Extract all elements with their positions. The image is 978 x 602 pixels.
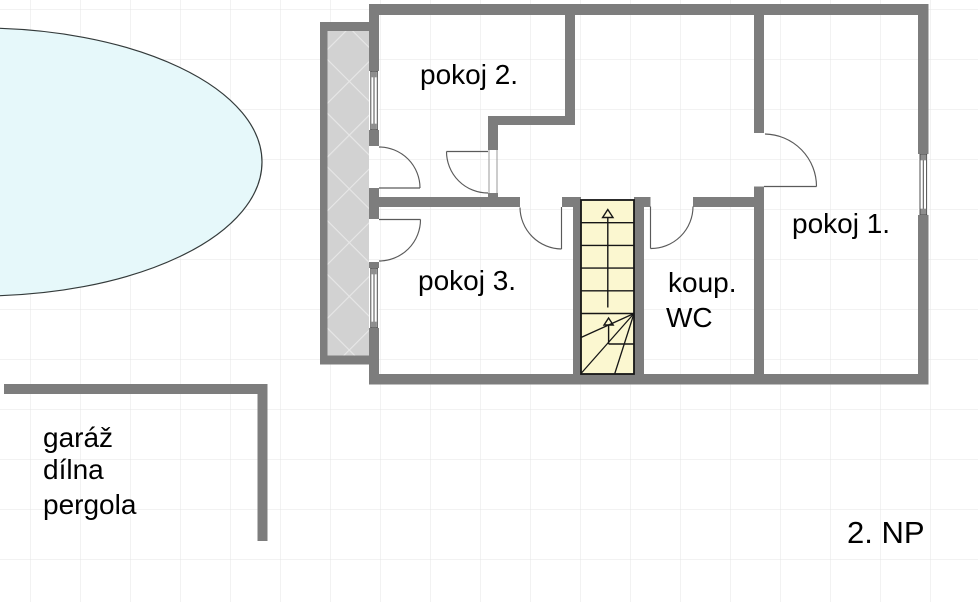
- svg-text:koup.: koup.: [668, 267, 737, 298]
- svg-text:dílna: dílna: [43, 454, 104, 485]
- svg-text:pokoj 1.: pokoj 1.: [792, 208, 890, 239]
- svg-text:pokoj 3.: pokoj 3.: [418, 265, 516, 296]
- svg-text:pokoj 2.: pokoj 2.: [420, 59, 518, 90]
- svg-text:garáž: garáž: [43, 422, 113, 453]
- svg-text:pergola: pergola: [43, 489, 137, 520]
- svg-text:2. NP: 2. NP: [847, 515, 925, 550]
- svg-text:WC: WC: [666, 302, 713, 333]
